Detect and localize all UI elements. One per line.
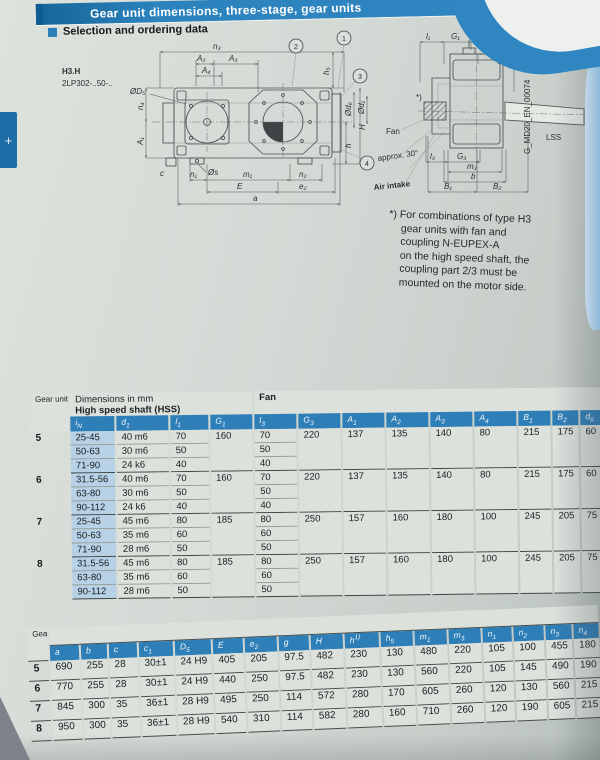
- column-header: G1: [210, 414, 252, 430]
- cell: 28: [109, 657, 138, 678]
- cell: 157: [344, 512, 387, 555]
- cell: 137: [342, 428, 385, 471]
- corner-label: Gear unit size: [27, 628, 48, 662]
- cell: 24 k6: [117, 500, 169, 515]
- ratio-cell: 50-63: [71, 445, 115, 460]
- dim-label-D5: ØD₅: [129, 87, 146, 96]
- dim-label-e2: e₂: [299, 182, 307, 191]
- cell: 205: [554, 551, 581, 593]
- cell: 245: [520, 552, 553, 594]
- dim-label-G3: G₃: [457, 152, 466, 161]
- page-edge-strip: [585, 52, 600, 330]
- gear-size-cell: 8: [32, 557, 71, 599]
- ratio-cell: 71-90: [72, 543, 116, 558]
- cell: 605: [548, 699, 575, 720]
- cell: 845: [52, 700, 82, 721]
- cell: 36±1: [141, 696, 176, 717]
- cell: 100: [476, 552, 519, 595]
- cell: 28 m6: [118, 584, 170, 599]
- dim-label-c: c: [160, 169, 164, 178]
- bottom-left-page-edge: [0, 688, 30, 760]
- cell: 770: [51, 680, 81, 701]
- dim-label-s: Øs: [207, 168, 218, 177]
- cell: 215: [576, 698, 600, 719]
- cell: 50: [255, 443, 297, 458]
- dim-label-B1: B₁: [444, 182, 452, 191]
- cell: 175: [552, 425, 579, 467]
- cell: 190: [575, 658, 600, 679]
- cell: 157: [344, 554, 387, 597]
- ratio-cell: 25-45: [71, 515, 115, 530]
- column-header: e2: [245, 636, 278, 652]
- cell: 135: [386, 427, 429, 470]
- cell: 50: [256, 583, 298, 598]
- cell: 40: [255, 499, 297, 514]
- ratio-cell: 25-45: [70, 431, 114, 446]
- ratio-cell: 90-112: [71, 501, 115, 516]
- cell: 215: [519, 468, 552, 510]
- dim-label-h5: h₅: [322, 67, 331, 75]
- cell: 24 k6: [117, 458, 169, 473]
- cell: 300: [84, 719, 111, 740]
- cell: 120: [485, 702, 515, 723]
- cell: 300: [83, 699, 110, 720]
- cell: 105: [483, 642, 513, 663]
- cell: 145: [515, 660, 546, 681]
- cell: 60: [256, 527, 298, 542]
- column-header: g: [279, 635, 310, 651]
- dim-label-n1: n₁: [190, 170, 197, 179]
- cell: 75: [581, 509, 600, 551]
- cell: 70: [255, 471, 297, 486]
- left-page-tab: +: [0, 112, 17, 168]
- cell: 230: [345, 647, 380, 668]
- callout-3: 3: [358, 74, 362, 81]
- ratio-cell: 63-80: [72, 571, 116, 586]
- cell: 80: [256, 513, 298, 528]
- column-header: m1: [414, 629, 447, 645]
- column-header: d1: [116, 415, 168, 431]
- cell: 137: [343, 470, 386, 513]
- cell: 105: [484, 662, 514, 683]
- cell: 560: [548, 679, 575, 700]
- cell: 60: [580, 425, 600, 467]
- cell: 130: [516, 680, 547, 701]
- approx-angle-label: approx. 30°: [377, 148, 419, 163]
- column-header: n4: [573, 623, 599, 639]
- cell: 230: [346, 667, 381, 688]
- cell: 480: [415, 644, 448, 665]
- cell: 490: [547, 659, 574, 680]
- dim-label-l3: l₃: [430, 152, 435, 161]
- ratio-cell: 31.5-56: [71, 473, 115, 488]
- cell: 130: [381, 646, 414, 667]
- cell: 30 m6: [117, 486, 169, 501]
- dim-label-B2: B₂: [493, 182, 501, 191]
- page-title: Gear unit dimensions, three-stage, gear …: [46, 0, 362, 21]
- cell: 100: [476, 510, 519, 553]
- column-header: h1): [344, 632, 379, 648]
- cell: 205: [553, 509, 580, 551]
- cell: 582: [314, 709, 347, 730]
- cell: 160: [384, 706, 417, 727]
- cell: 40 m6: [117, 472, 169, 487]
- column-header: l3: [254, 414, 296, 430]
- hss-fan-dimensions-table: Gear unit sizeDimensions in mmHigh speed…: [28, 387, 600, 616]
- column-header: B1: [518, 411, 550, 426]
- ratio-cell: 90-112: [72, 585, 116, 600]
- cell: 80: [475, 468, 518, 511]
- cell: 495: [215, 693, 246, 714]
- cell: 455: [546, 639, 573, 660]
- cell: 70: [170, 430, 208, 444]
- cell: 180: [574, 638, 600, 659]
- dim-label-l1-left: l₁: [426, 32, 431, 41]
- gear-size-cell: 8: [31, 721, 52, 742]
- column-header: a: [50, 645, 80, 661]
- section-bullet-icon: [48, 27, 57, 36]
- cell: 185: [212, 555, 255, 598]
- hss-group-header: Dimensions in mmHigh speed shaft (HSS): [70, 391, 252, 416]
- ratio-cell: 50-63: [72, 529, 116, 544]
- cell: 40: [255, 457, 297, 472]
- dim-label-d1: Ød₁: [357, 100, 366, 115]
- footnote: *) For combinations of type H3gear units…: [387, 208, 590, 297]
- cell: 560: [416, 664, 449, 685]
- cell: 28 H9: [177, 694, 214, 715]
- lss-shaft: [505, 102, 584, 125]
- column-header: m3: [448, 628, 481, 644]
- dim-label-E: E: [237, 182, 243, 191]
- cell: 160: [388, 553, 431, 596]
- dim-label-m1: m₁: [243, 170, 253, 179]
- catalog-page: Gear unit dimensions, three-stage, gear …: [0, 0, 600, 760]
- section-title: Selection and ordering data: [63, 23, 208, 38]
- column-header: c1: [139, 641, 174, 657]
- cell: 24 H9: [175, 654, 212, 675]
- column-header: G3: [298, 413, 340, 429]
- cell: 440: [214, 673, 245, 694]
- cell: 97.5: [280, 670, 311, 691]
- cell: 950: [53, 720, 83, 741]
- column-header: A3: [430, 412, 472, 428]
- cell: 135: [387, 469, 430, 512]
- dim-label-b: b: [471, 172, 476, 181]
- cell: 280: [347, 687, 382, 708]
- cell: 70: [171, 472, 209, 486]
- cell: 260: [452, 703, 485, 724]
- cell: 80: [172, 556, 210, 570]
- column-header: A1: [342, 413, 384, 429]
- banner-notch: [36, 4, 43, 25]
- cell: 572: [313, 689, 346, 710]
- column-header: n2: [513, 625, 544, 641]
- gear-size-cell: 7: [30, 701, 51, 722]
- cell: 40 m6: [116, 430, 168, 445]
- ratio-cell: 63-80: [71, 487, 115, 502]
- column-header: h5: [380, 631, 413, 647]
- cell: 190: [516, 700, 547, 721]
- tab-glyph: +: [5, 133, 13, 148]
- cell: 255: [81, 659, 108, 680]
- cell: 245: [520, 510, 553, 552]
- dim-label-A3: A₃: [228, 54, 238, 63]
- cell: 140: [431, 469, 474, 512]
- column-header: A4: [474, 411, 516, 427]
- cell: 140: [430, 427, 473, 470]
- cell: 60: [581, 467, 600, 509]
- cell: 60: [172, 570, 210, 584]
- cell: 35 m6: [118, 570, 170, 585]
- column-header: E: [213, 638, 244, 654]
- column-header: d6: [580, 410, 600, 425]
- cell: 180: [432, 511, 475, 554]
- column-header: A2: [386, 412, 428, 428]
- coupling-hub: [424, 102, 446, 120]
- cell: 40: [171, 500, 209, 514]
- cell: 170: [383, 686, 416, 707]
- cell: 50: [172, 584, 210, 598]
- cell: 80: [474, 426, 517, 469]
- gear-size-cell: 6: [29, 681, 50, 702]
- column-header: D5: [175, 639, 212, 655]
- cell: 310: [248, 711, 281, 732]
- drawing-number: G_MD20_EN_00074: [523, 79, 532, 154]
- cell: 185: [211, 513, 254, 556]
- cell: 114: [282, 710, 313, 731]
- cell: 482: [311, 649, 344, 670]
- callout-4: 4: [365, 161, 369, 168]
- cell: 540: [216, 713, 247, 734]
- cell: 260: [451, 683, 484, 704]
- dim-label-n3: n₃: [213, 42, 221, 51]
- callout-1: 1: [342, 36, 346, 43]
- dim-label-a: a: [253, 194, 258, 203]
- column-header: n3: [545, 624, 572, 640]
- cell: 50: [171, 486, 209, 500]
- dim-label-h: h: [344, 143, 353, 148]
- cell: 280: [348, 707, 383, 728]
- cell: 250: [300, 512, 343, 555]
- dim-label-A2: A₂: [196, 54, 205, 63]
- cell: 220: [450, 663, 483, 684]
- column-header: l1: [170, 415, 208, 430]
- dim-label-H: H: [358, 124, 367, 130]
- cell: 175: [553, 467, 580, 509]
- cell: 30 m6: [117, 444, 169, 459]
- cell: 30±1: [140, 676, 175, 697]
- dim-label-G1-left: G₁: [451, 32, 460, 41]
- cell: 220: [299, 470, 342, 513]
- cell: 220: [298, 428, 341, 471]
- cell: 130: [382, 666, 415, 687]
- corner-label: Gear unit size: [30, 394, 68, 432]
- column-header: B2: [552, 410, 578, 425]
- callout-2: 2: [294, 44, 298, 51]
- cell: 80: [256, 555, 298, 570]
- dim-label-A4: A₄: [201, 66, 211, 75]
- column-header: iN: [70, 416, 114, 432]
- order-code-label: 2LP302-..50-..: [62, 79, 113, 88]
- gear-size-cell: 6: [31, 474, 70, 516]
- cell: 120: [485, 682, 515, 703]
- cell: 30±1: [139, 656, 174, 677]
- cell: 75: [582, 551, 600, 593]
- cell: 215: [518, 426, 551, 468]
- cell: 405: [213, 653, 244, 674]
- cell: 35: [111, 697, 140, 718]
- cell: 60: [172, 528, 210, 542]
- cell: 50: [256, 541, 298, 556]
- cell: 690: [50, 660, 80, 681]
- cell: 50: [255, 485, 297, 500]
- cell: 45 m6: [117, 514, 169, 529]
- dim-label-A1: A₁: [136, 137, 145, 146]
- cell: 80: [171, 514, 209, 528]
- dim-label-m3: m₃: [467, 162, 477, 171]
- cell: 205: [245, 651, 278, 672]
- cell: 60: [256, 569, 298, 584]
- dim-label-n4: n₄: [136, 102, 145, 110]
- fan-annotations: Fan approx. 30° Air intake *) LSS G_MD20…: [373, 79, 561, 192]
- cell: 35: [112, 717, 141, 738]
- air-intake-label: Air intake: [373, 179, 411, 192]
- cell: 45 m6: [118, 556, 170, 571]
- cell: 70: [254, 429, 296, 444]
- column-header: c: [109, 642, 138, 658]
- cell: 50: [172, 542, 210, 556]
- fan-label: Fan: [386, 127, 400, 136]
- column-header: H: [311, 634, 344, 650]
- cell: 180: [432, 553, 475, 596]
- dim-label-n2: n₂: [299, 170, 307, 179]
- cell: 114: [281, 690, 312, 711]
- cell: 160: [388, 511, 431, 554]
- cell: 220: [449, 643, 482, 664]
- table-hss-fan: Gear unit sizeDimensions in mmHigh speed…: [28, 387, 600, 600]
- housing-dimensions-table: Gear unit sizeabcc1D5Ee2gHh1)h5m1m3n1n2n…: [25, 605, 600, 759]
- column-header: b: [81, 644, 108, 660]
- cell: 50: [171, 444, 209, 458]
- gear-size-cell: 5: [28, 661, 49, 682]
- cell: 605: [417, 684, 450, 705]
- cell: 255: [82, 679, 109, 700]
- column-header: n1: [482, 627, 512, 643]
- cell: 215: [576, 678, 600, 699]
- cell: 250: [246, 671, 279, 692]
- cell: 28 m6: [118, 542, 170, 557]
- cell: 36±1: [142, 716, 177, 737]
- cell: 35 m6: [118, 528, 170, 543]
- lss-label: LSS: [546, 133, 561, 142]
- cell: 160: [210, 429, 253, 472]
- cell: 250: [247, 691, 280, 712]
- dim-label-d6: Ød₆: [344, 101, 353, 117]
- cell: 250: [300, 554, 343, 597]
- cell: 710: [418, 704, 451, 725]
- cell: 100: [514, 640, 545, 661]
- ratio-cell: 31.5-56: [72, 557, 116, 572]
- footnote-marker: *): [416, 93, 422, 102]
- cell: 482: [312, 669, 345, 690]
- gear-size-cell: 7: [31, 516, 70, 558]
- gear-size-cell: 5: [30, 432, 69, 474]
- cell: 97.5: [279, 650, 310, 671]
- gear-housing-plan-view: [163, 88, 341, 166]
- cell: 160: [211, 471, 254, 514]
- cell: 28: [110, 677, 139, 698]
- ratio-cell: 71-90: [71, 459, 115, 474]
- table-housing: Gear unit sizeabcc1D5Ee2gHh1)h5m1m3n1n2n…: [25, 605, 600, 742]
- model-type-label: H3.H: [62, 67, 80, 76]
- cell: 28 H9: [178, 714, 215, 735]
- cell: 24 H9: [176, 674, 213, 695]
- cell: 40: [171, 458, 209, 472]
